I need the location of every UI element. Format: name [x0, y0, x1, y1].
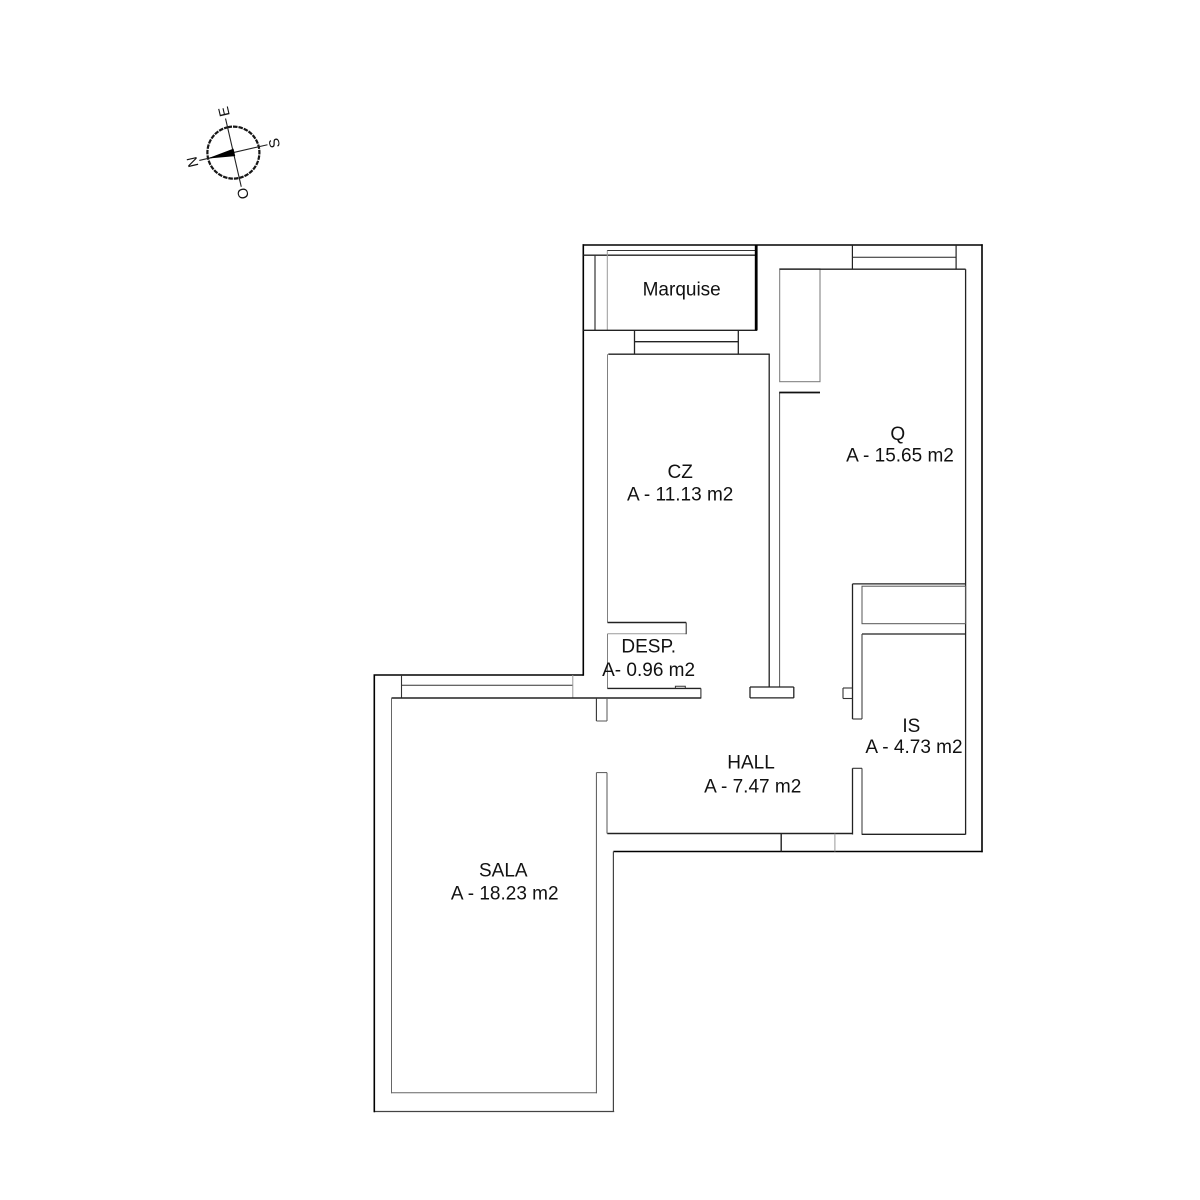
svg-text:Marquise: Marquise	[643, 280, 721, 301]
svg-text:A - 15.65 m2: A - 15.65 m2	[846, 446, 954, 467]
svg-text:CZ: CZ	[668, 462, 694, 483]
svg-text:A - 18.23 m2: A - 18.23 m2	[451, 883, 559, 904]
svg-text:S: S	[266, 136, 284, 149]
svg-text:IS: IS	[902, 716, 920, 737]
svg-text:A - 7.47 m2: A - 7.47 m2	[704, 777, 801, 798]
svg-text:SALA: SALA	[479, 861, 528, 882]
svg-text:DESP.: DESP.	[621, 637, 676, 658]
svg-text:A- 0.96 m2: A- 0.96 m2	[602, 660, 695, 681]
svg-text:HALL: HALL	[727, 753, 775, 774]
svg-text:O: O	[235, 186, 253, 201]
svg-text:Q: Q	[890, 424, 905, 445]
svg-text:A - 4.73 m2: A - 4.73 m2	[865, 737, 962, 758]
svg-text:N: N	[184, 155, 202, 169]
svg-text:A - 11.13 m2: A - 11.13 m2	[627, 485, 733, 506]
svg-text:E: E	[216, 105, 234, 118]
